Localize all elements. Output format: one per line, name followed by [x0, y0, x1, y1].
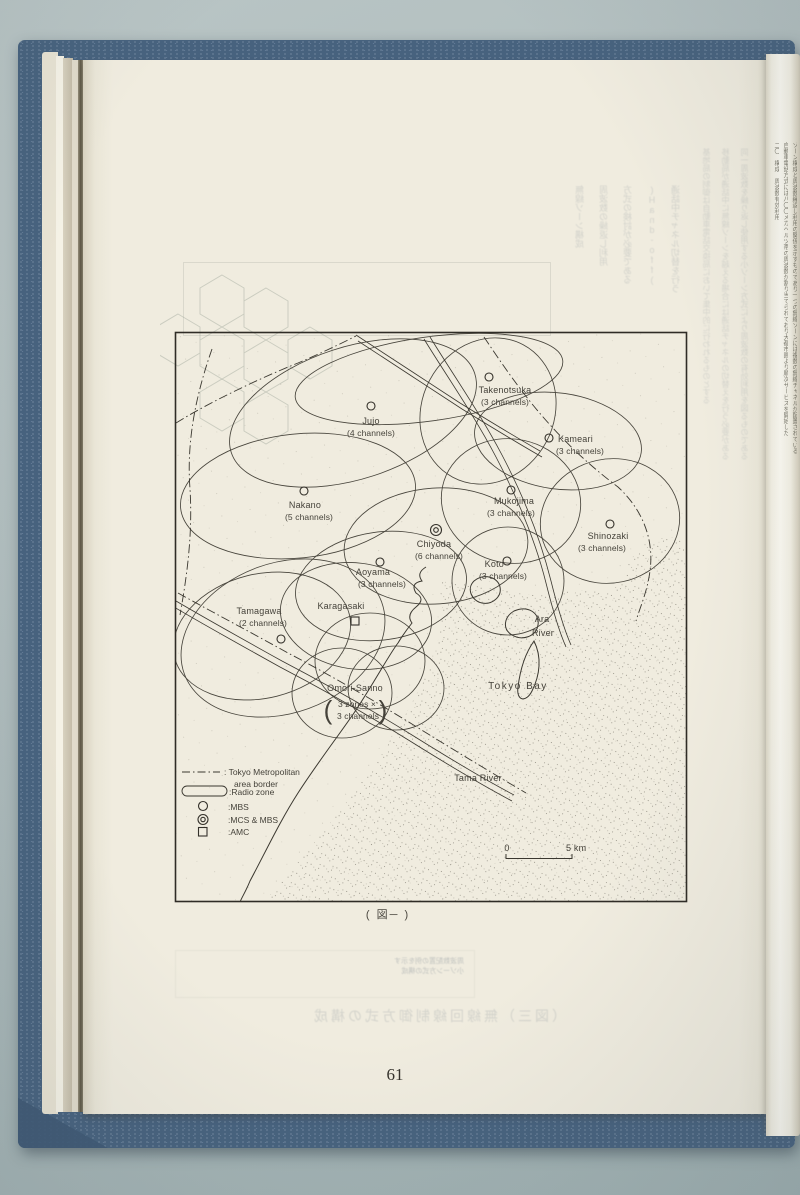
zone-channels-aoyama: (3 channels): [358, 579, 406, 589]
zone-channels-mukojima: (3 channels): [487, 508, 535, 518]
ghost-text-column: (Hand-off): [647, 185, 658, 343]
book-page: 通話中チャネル切替を行う (Hand-off) 方式の検討が必要である 周波数の…: [83, 60, 766, 1114]
zone-channels-nakano: (5 channels): [285, 512, 333, 522]
zone-label-omori-sanno: Omori-Sanno: [327, 683, 383, 693]
omori-paren-open: (: [324, 695, 333, 725]
label-ara-river-2: River: [532, 628, 554, 638]
zone-label-kameari: Kameari: [558, 434, 593, 444]
ghost-bleed-text-right-margin: 同一周波数を繰り返し使用する小ゾーン方式により周波数の有効利用を図るものである …: [698, 148, 750, 1050]
zone-channels-chiyoda: (6 channels): [415, 551, 463, 561]
legend-amc-label: :AMC: [228, 827, 249, 837]
next-page-text-col-3: ゾーン構成と周波数繰返し利用の関係を示すものであり一つの無線ゾーンには複数の無線…: [791, 142, 797, 1084]
label-ara-river-1: Ara: [535, 614, 550, 624]
figure-caption: ( 図─ ): [338, 906, 438, 922]
zone-channels-tamagawa: (2 channels): [239, 618, 287, 628]
legend-mbs-label: :MBS: [228, 802, 249, 812]
scale-start-label: 0: [504, 843, 509, 853]
next-page-edge: 二〇 構成 周波数有効利用 自動車電話方式には八〇〇メガヘルツ帯の周波数が割り当…: [766, 54, 800, 1136]
scale-end-label: 5 km: [566, 843, 586, 853]
ghost-text-column: 周波数の繰返し利用: [599, 185, 610, 343]
zone-label-jujo: Jujo: [362, 416, 379, 426]
legend-mcs-mbs-label: :MCS & MBS: [228, 815, 278, 825]
zone-channels-kameari: (3 channels): [556, 446, 604, 456]
zone-label-shinozaki: Shinozaki: [588, 531, 629, 541]
ghost-text-column: 移動局が通話中に無線ゾーンを越える場合には通話チャネルの切替えを行う必要がある: [721, 148, 731, 1050]
label-tama-river: Tama River: [454, 773, 502, 783]
zone-label-mukojima: Mukojima: [494, 496, 534, 506]
ghost-text-column: 無線ゾーン構成: [575, 185, 586, 343]
zone-channels-takenotsuka: (3 channels): [481, 397, 529, 407]
ghost-text-column: 基地局の制御は自動車電話交換局において集中的に行われるものとする: [702, 148, 712, 1050]
ghost-text-column: 同一周波数を繰り返し使用する小ゾーン方式により周波数の有効利用を図るものである: [740, 148, 750, 1050]
ghost-bleed-caption: （図三）無線回線制御方式の構成: [230, 1006, 566, 1026]
ghost-text-line: 小ゾーン方式の構成: [186, 967, 464, 977]
ghost-text-line: 周波数配置の例を示す: [186, 957, 464, 967]
ghost-bleed-box-bottom: 周波数配置の例を示す 小ゾーン方式の構成: [175, 950, 475, 998]
next-page-text: 二〇 構成 周波数有効利用 自動車電話方式には八〇〇メガヘルツ帯の周波数が割り当…: [773, 142, 797, 1084]
zone-line2-omori: 3 channels: [337, 711, 379, 721]
legend-radio-zone-label: :Radio zone: [229, 787, 275, 797]
next-page-text-col-1: 二〇 構成 周波数有効利用: [773, 142, 779, 1084]
ghost-bleed-text-top: 通話中チャネル切替を行う (Hand-off) 方式の検討が必要である 周波数の…: [400, 185, 682, 343]
label-tokyo-bay: Tokyo Bay: [488, 681, 548, 692]
zone-label-koto: Koto: [485, 559, 504, 569]
zone-channels-shinozaki: (3 channels): [578, 543, 626, 553]
zone-label-nakano: Nakano: [289, 500, 321, 510]
zone-label-aoyama: Aoyama: [356, 567, 390, 577]
zone-label-takenotsuka: Takenotsuka: [479, 385, 532, 395]
ghost-text-column: 方式の検討が必要である: [623, 185, 634, 343]
zone-label-chiyoda: Chiyoda: [417, 539, 451, 549]
legend-border-label-1: : Tokyo Metropolitan: [224, 767, 300, 777]
zone-channels-jujo: (4 channels): [347, 428, 395, 438]
ghost-figure-outline: [183, 262, 551, 336]
zone-line1-omori: 3 zones ×: [338, 699, 376, 709]
zone-label-tamagawa: Tamagawa: [236, 606, 281, 616]
zone-channels-koto: (3 channels): [479, 571, 527, 581]
omori-paren-close: ): [379, 695, 388, 725]
radio-zone-map-figure: Jujo (4 channels) Takenotsuka (3 channel…: [174, 331, 688, 903]
page-number: 61: [355, 1065, 435, 1085]
ghost-text-column: 通話中チャネル切替を行う: [671, 185, 682, 343]
zone-label-karagasaki: Karagasaki: [317, 601, 364, 611]
next-page-text-col-2: 自動車電話方式には八〇〇メガヘルツ帯の周波数が割り当てられており大都市圏より順次…: [782, 142, 788, 1084]
